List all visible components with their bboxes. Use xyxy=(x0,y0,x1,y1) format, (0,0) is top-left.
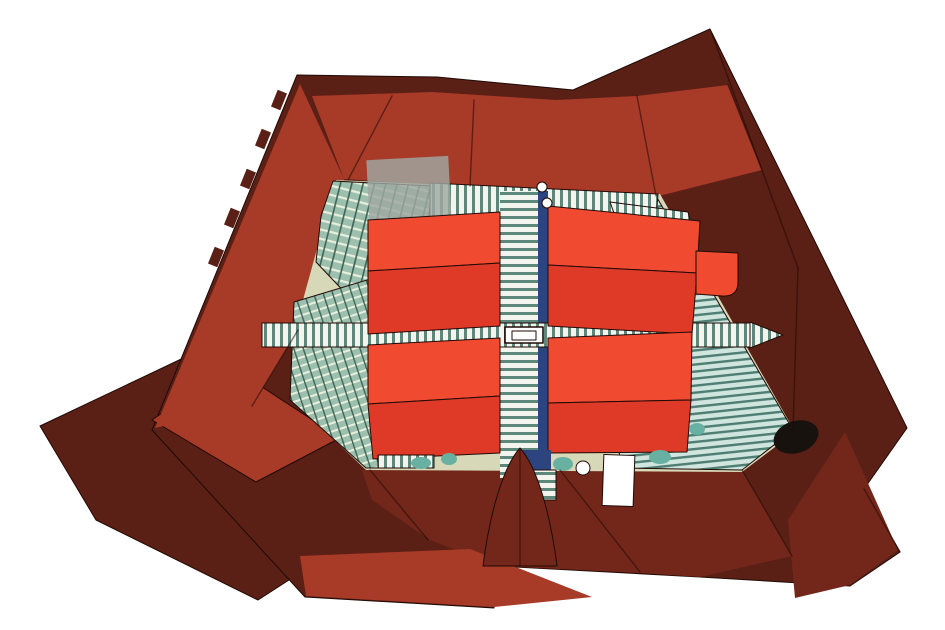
pavilion-block-ne xyxy=(548,206,700,334)
central-skylight xyxy=(505,327,543,343)
round-skylight xyxy=(537,182,547,192)
round-skylight xyxy=(576,461,590,475)
pavilion-side-face xyxy=(368,396,500,459)
pavilion-roof-face xyxy=(368,212,500,271)
illustration-stage xyxy=(0,0,945,630)
pavilion-roof-face xyxy=(548,332,692,403)
pavilion-block-nw xyxy=(368,212,500,334)
pavilion-block-se xyxy=(548,332,692,453)
axonometric-roof-plan xyxy=(0,0,945,630)
tree xyxy=(411,457,431,469)
rounded-corner-tower xyxy=(696,251,738,296)
white-rooftop-structure xyxy=(602,454,635,506)
tree xyxy=(649,450,671,464)
tree xyxy=(553,457,573,471)
pavilion-block-sw xyxy=(368,338,500,459)
pavilion-side-face xyxy=(548,400,691,453)
tree xyxy=(441,453,457,465)
round-skylight xyxy=(542,198,552,208)
pavilion-side-face xyxy=(368,263,500,334)
pavilion-side-face xyxy=(548,265,697,334)
tree xyxy=(689,423,705,435)
pavilion-roof-face xyxy=(368,338,500,404)
